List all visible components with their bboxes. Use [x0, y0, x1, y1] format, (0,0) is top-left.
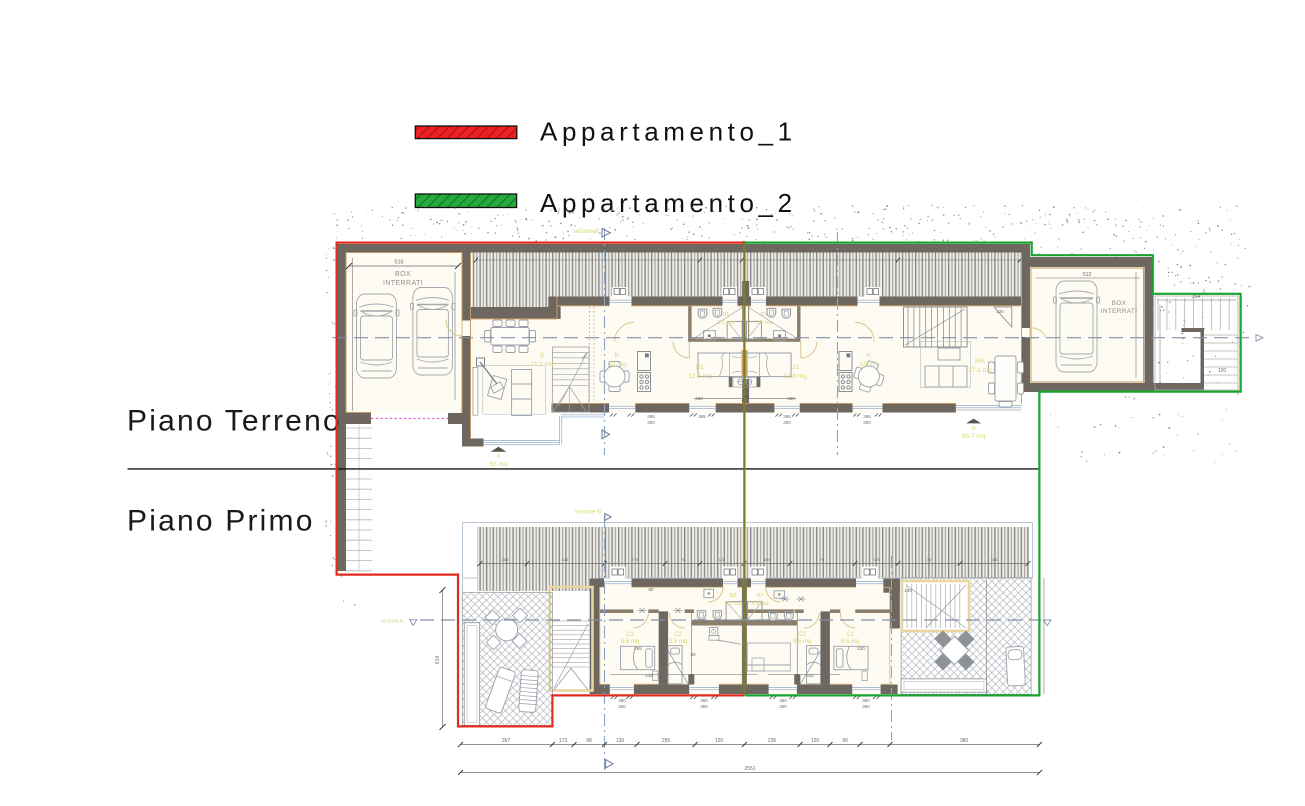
svg-text:BOX: BOX — [1112, 300, 1127, 307]
svg-text:210: 210 — [889, 296, 897, 301]
svg-text:516: 516 — [394, 260, 403, 266]
svg-text:B2: B2 — [730, 593, 737, 599]
svg-text:12.8 mq: 12.8 mq — [783, 373, 807, 380]
svg-text:512: 512 — [1083, 272, 1092, 278]
svg-text:122: 122 — [719, 557, 726, 562]
svg-text:INTERRATI: INTERRATI — [383, 280, 423, 287]
svg-text:4.5 mq: 4.5 mq — [725, 601, 742, 607]
svg-text:INTERRATI: INTERRATI — [1101, 308, 1138, 315]
svg-text:365: 365 — [783, 414, 791, 419]
svg-text:10 mq: 10 mq — [608, 361, 626, 368]
svg-text:295: 295 — [634, 646, 642, 651]
svg-text:120: 120 — [811, 738, 820, 744]
svg-text:300: 300 — [863, 420, 871, 425]
svg-text:C2: C2 — [674, 632, 682, 638]
svg-text:98: 98 — [586, 738, 592, 744]
svg-text:120: 120 — [874, 557, 881, 562]
svg-text:9.6 mq: 9.6 mq — [621, 639, 639, 645]
svg-text:360: 360 — [862, 698, 870, 703]
svg-text:4.5 mq: 4.5 mq — [752, 601, 769, 607]
svg-text:360: 360 — [700, 698, 708, 703]
svg-text:308: 308 — [991, 557, 998, 562]
svg-text:120: 120 — [996, 309, 1004, 314]
svg-text:85.7 mq: 85.7 mq — [962, 433, 986, 440]
svg-text:360: 360 — [618, 704, 626, 709]
svg-text:210: 210 — [642, 296, 650, 301]
svg-text:21.1 mq: 21.1 mq — [530, 361, 554, 368]
svg-text:D1: D1 — [696, 364, 705, 371]
svg-text:335: 335 — [806, 673, 814, 678]
svg-text:C3: C3 — [626, 632, 634, 638]
svg-text:535: 535 — [645, 673, 653, 678]
svg-text:236: 236 — [768, 738, 777, 744]
svg-text:S/K: S/K — [975, 358, 986, 365]
svg-text:76: 76 — [681, 557, 686, 562]
svg-text:2551: 2551 — [744, 766, 755, 772]
svg-text:S: S — [540, 352, 545, 359]
svg-text:360: 360 — [779, 698, 787, 703]
svg-text:Piano Primo: Piano Primo — [127, 505, 315, 538]
svg-text:90: 90 — [842, 738, 848, 744]
svg-text:80: 80 — [648, 587, 654, 592]
svg-text:27.1 mq: 27.1 mq — [968, 367, 992, 374]
svg-text:C2: C2 — [798, 632, 806, 638]
svg-text:76: 76 — [927, 557, 932, 562]
svg-text:K: K — [867, 352, 872, 359]
svg-text:70: 70 — [820, 557, 825, 562]
svg-text:430: 430 — [695, 396, 703, 401]
svg-text:230: 230 — [857, 646, 865, 651]
svg-text:B1: B1 — [723, 312, 730, 318]
svg-text:3.5 mq: 3.5 mq — [718, 320, 735, 326]
svg-text:120: 120 — [715, 738, 724, 744]
svg-text:300: 300 — [783, 420, 791, 425]
svg-text:263: 263 — [502, 557, 509, 562]
svg-text:B2: B2 — [757, 593, 764, 599]
svg-text:120: 120 — [1218, 368, 1227, 374]
svg-text:365: 365 — [863, 414, 871, 419]
svg-text:9.5 mq: 9.5 mq — [793, 639, 811, 645]
svg-text:C1: C1 — [846, 632, 854, 638]
svg-text:9.5 mq: 9.5 mq — [669, 639, 687, 645]
svg-text:365: 365 — [647, 414, 655, 419]
svg-text:365: 365 — [698, 414, 706, 419]
svg-text:12.8 mq: 12.8 mq — [688, 373, 712, 380]
svg-text:342: 342 — [562, 557, 569, 562]
svg-text:BOX: BOX — [395, 271, 411, 278]
svg-text:130: 130 — [616, 738, 625, 744]
svg-text:sezione B: sezione B — [575, 510, 601, 516]
svg-text:367: 367 — [502, 738, 511, 744]
svg-text:80: 80 — [690, 652, 696, 657]
svg-text:255: 255 — [662, 738, 671, 744]
svg-text:380: 380 — [960, 738, 969, 744]
svg-text:sezione A: sezione A — [381, 619, 403, 625]
svg-text:360: 360 — [779, 704, 787, 709]
svg-text:Piano Terreno: Piano Terreno — [127, 405, 342, 438]
svg-text:Appartamento_1: Appartamento_1 — [540, 117, 797, 147]
svg-text:400: 400 — [764, 557, 771, 562]
svg-text:778: 778 — [632, 557, 639, 562]
svg-text:100: 100 — [904, 588, 912, 593]
svg-text:300: 300 — [647, 420, 655, 425]
svg-text:Appartamento_2: Appartamento_2 — [540, 188, 797, 218]
svg-text:10 mq: 10 mq — [860, 361, 878, 368]
svg-text:9.6 mq: 9.6 mq — [841, 639, 859, 645]
svg-text:480: 480 — [787, 396, 795, 401]
svg-text:K: K — [615, 352, 620, 359]
svg-text:M: M — [972, 426, 976, 432]
svg-text:sezione B: sezione B — [573, 229, 599, 235]
svg-text:360: 360 — [618, 698, 626, 703]
svg-text:360: 360 — [700, 704, 708, 709]
svg-text:360: 360 — [862, 704, 870, 709]
svg-text:65 mq: 65 mq — [490, 461, 508, 468]
svg-text:D1: D1 — [791, 364, 800, 371]
svg-text:614: 614 — [435, 656, 441, 665]
svg-text:173: 173 — [559, 738, 568, 744]
